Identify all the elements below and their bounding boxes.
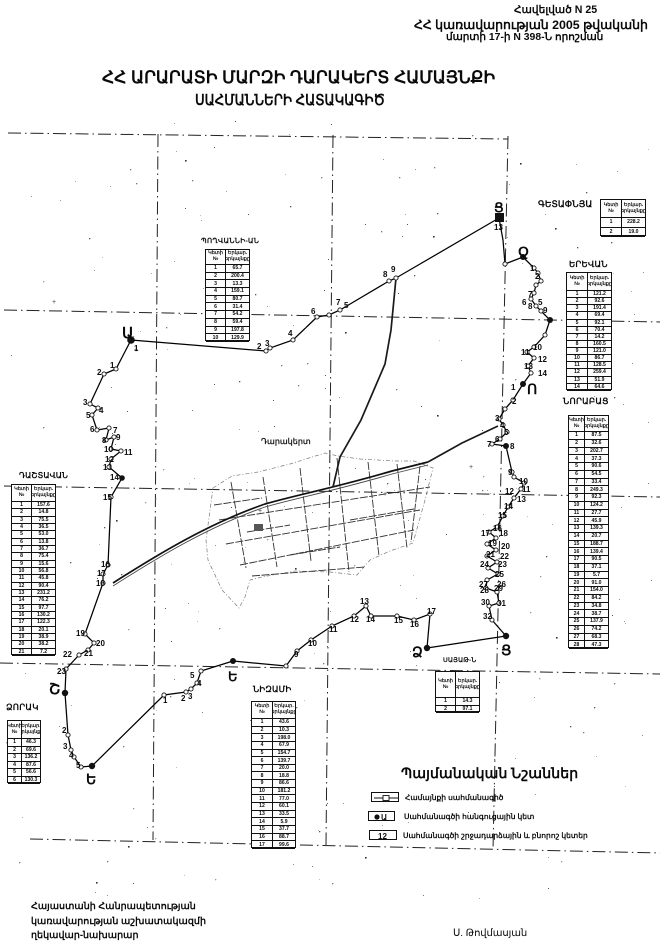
svg-text:11: 11	[522, 485, 531, 494]
svg-text:19: 19	[76, 629, 85, 638]
svg-text:19: 19	[488, 539, 497, 548]
svg-text:17: 17	[481, 529, 490, 538]
svg-text:9: 9	[391, 265, 396, 274]
svg-text:3: 3	[83, 398, 88, 407]
svg-text:13: 13	[524, 362, 533, 371]
svg-text:12: 12	[378, 832, 387, 841]
svg-text:11: 11	[124, 448, 133, 457]
svg-text:12: 12	[538, 355, 547, 364]
svg-text:21: 21	[486, 550, 495, 559]
svg-text:14: 14	[366, 615, 375, 624]
svg-text:23: 23	[57, 667, 66, 676]
svg-text:16: 16	[493, 524, 502, 533]
svg-text:Ձ: Ձ	[412, 644, 423, 660]
svg-text:Ց: Ց	[494, 200, 504, 215]
svg-text:27: 27	[479, 580, 488, 589]
svg-text:9: 9	[294, 650, 299, 659]
svg-text:2: 2	[62, 726, 67, 735]
svg-text:6: 6	[495, 435, 500, 444]
svg-text:6: 6	[522, 298, 527, 307]
svg-text:13: 13	[360, 597, 369, 606]
svg-text:9: 9	[116, 433, 121, 442]
svg-text:Ո: Ո	[527, 381, 537, 397]
svg-text:31: 31	[497, 599, 506, 608]
svg-text:26: 26	[497, 580, 506, 589]
svg-text:16: 16	[101, 560, 110, 569]
svg-text:23: 23	[498, 560, 507, 569]
svg-text:17: 17	[427, 607, 436, 616]
svg-text:5: 5	[190, 671, 195, 680]
svg-text:Ա: Ա	[122, 325, 134, 342]
svg-text:6: 6	[311, 307, 316, 316]
svg-text:25: 25	[495, 570, 504, 579]
svg-text:5: 5	[344, 301, 349, 310]
svg-text:Ե: Ե	[228, 669, 238, 684]
svg-text:10: 10	[519, 477, 528, 486]
svg-text:10: 10	[104, 445, 113, 454]
svg-text:4: 4	[500, 421, 505, 430]
svg-text:22: 22	[63, 650, 72, 659]
svg-text:3: 3	[188, 692, 193, 701]
svg-text:2: 2	[97, 368, 102, 377]
svg-text:22: 22	[500, 552, 509, 561]
svg-text:24: 24	[480, 560, 489, 569]
svg-text:17: 17	[97, 569, 106, 578]
svg-text:32: 32	[483, 612, 492, 621]
svg-text:2: 2	[181, 694, 186, 703]
svg-text:10: 10	[308, 639, 317, 648]
svg-text:Q: Q	[518, 243, 529, 259]
svg-text:4: 4	[69, 751, 74, 760]
svg-text:1: 1	[110, 361, 115, 370]
svg-text:8: 8	[510, 442, 515, 451]
svg-text:7: 7	[336, 298, 341, 307]
svg-text:1: 1	[163, 696, 168, 705]
svg-text:Ց: Ց	[501, 642, 511, 658]
svg-text:7: 7	[487, 440, 492, 449]
svg-text:5: 5	[86, 411, 91, 420]
svg-text:18: 18	[96, 579, 105, 588]
svg-text:5: 5	[76, 761, 81, 770]
svg-text:20: 20	[501, 542, 510, 551]
svg-text:8: 8	[383, 270, 388, 279]
svg-text:15: 15	[394, 616, 403, 625]
svg-text:15: 15	[498, 511, 507, 520]
svg-text:1: 1	[134, 344, 139, 353]
svg-text:Շ: Շ	[49, 681, 60, 698]
svg-text:8: 8	[528, 302, 533, 311]
svg-text:7: 7	[528, 290, 533, 299]
svg-text:12: 12	[350, 615, 359, 624]
svg-text:4: 4	[288, 329, 293, 338]
svg-text:8: 8	[102, 436, 107, 445]
svg-text:2: 2	[535, 272, 540, 281]
svg-text:+: +	[469, 464, 473, 471]
svg-text:3: 3	[495, 414, 500, 423]
svg-text:3: 3	[265, 339, 270, 348]
svg-text:Ա: Ա	[381, 813, 387, 822]
svg-text:20: 20	[96, 639, 105, 648]
svg-text:+: +	[52, 299, 56, 306]
svg-text:+: +	[383, 491, 387, 498]
svg-text:14: 14	[110, 473, 119, 482]
svg-text:14: 14	[538, 369, 547, 378]
svg-text:10: 10	[533, 343, 542, 352]
svg-text:16: 16	[410, 620, 419, 629]
svg-text:5: 5	[504, 428, 509, 437]
svg-text:12: 12	[505, 487, 514, 496]
svg-text:2: 2	[512, 397, 517, 406]
svg-text:1: 1	[511, 383, 516, 392]
svg-text:9: 9	[508, 468, 513, 477]
svg-text:1: 1	[530, 264, 535, 273]
svg-text:9: 9	[543, 306, 548, 315]
svg-text:2: 2	[257, 342, 262, 351]
svg-text:11: 11	[521, 348, 530, 357]
svg-text:5: 5	[538, 298, 543, 307]
svg-text:3: 3	[63, 742, 68, 751]
svg-text:30: 30	[481, 598, 490, 607]
svg-text:14: 14	[504, 502, 513, 511]
svg-text:13: 13	[494, 223, 503, 232]
svg-text:15: 15	[103, 493, 112, 502]
svg-text:6: 6	[90, 425, 95, 434]
svg-text:13: 13	[103, 463, 112, 472]
svg-text:Դարակերտ: Դարակերտ	[261, 437, 311, 446]
svg-text:13: 13	[517, 495, 526, 504]
svg-text:4: 4	[99, 406, 104, 415]
svg-text:11: 11	[329, 625, 338, 634]
svg-text:Ե: Ե	[86, 771, 96, 787]
svg-text:21: 21	[84, 649, 93, 658]
